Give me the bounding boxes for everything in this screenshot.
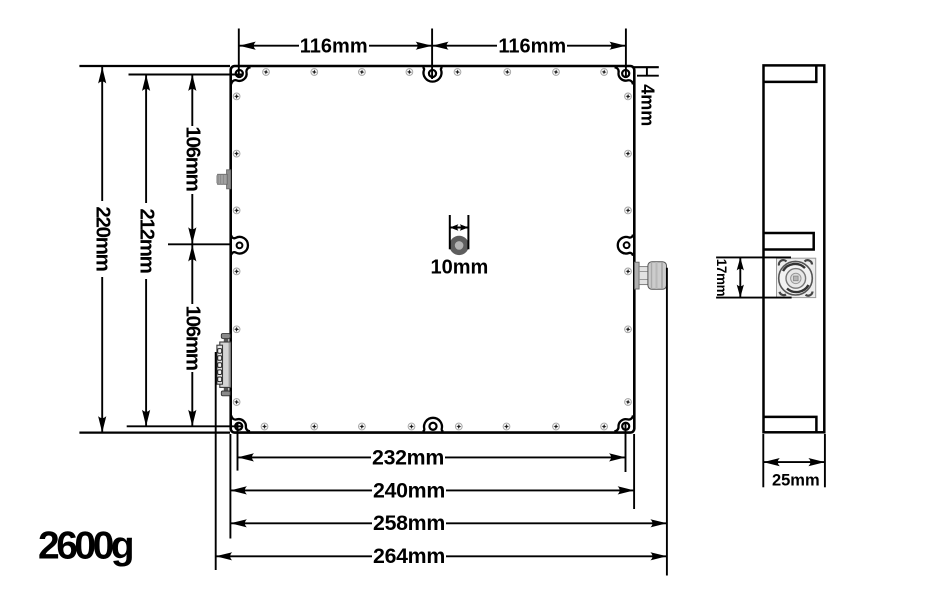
svg-text:106mm: 106mm	[182, 306, 205, 370]
svg-text:10mm: 10mm	[430, 257, 488, 279]
svg-text:106mm: 106mm	[182, 126, 205, 190]
svg-text:116mm: 116mm	[498, 35, 566, 57]
svg-text:25mm: 25mm	[772, 472, 820, 490]
svg-text:232mm: 232mm	[372, 445, 444, 469]
svg-text:116mm: 116mm	[300, 35, 368, 57]
svg-text:258mm: 258mm	[373, 511, 445, 535]
svg-text:2600g: 2600g	[38, 524, 133, 567]
svg-text:220mm: 220mm	[92, 206, 115, 270]
svg-text:17mm: 17mm	[714, 259, 729, 297]
svg-text:264mm: 264mm	[373, 544, 445, 568]
svg-text:4mm: 4mm	[637, 84, 657, 126]
svg-text:240mm: 240mm	[373, 478, 445, 502]
svg-text:212mm: 212mm	[135, 208, 158, 272]
